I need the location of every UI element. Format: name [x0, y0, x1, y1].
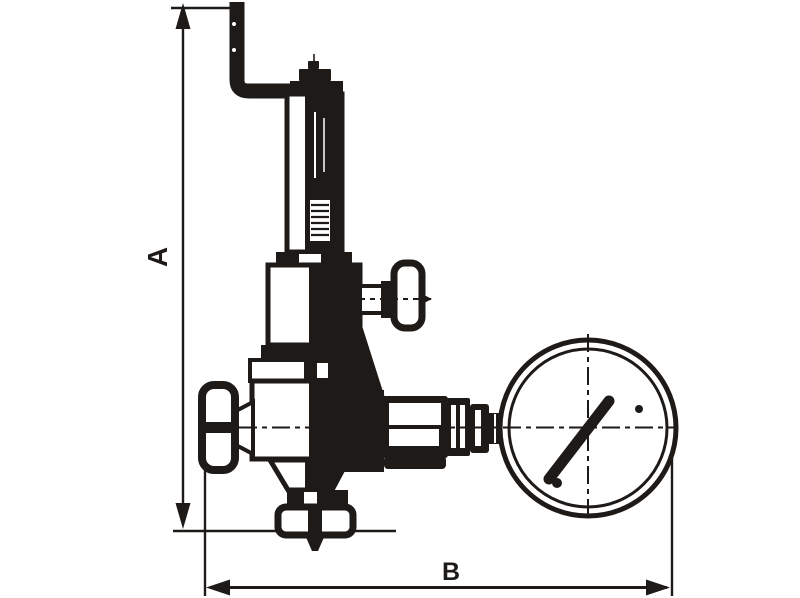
fitting-highlight — [389, 429, 439, 446]
dimension-b-label: B — [442, 558, 460, 586]
gauge-branch-root — [350, 390, 384, 458]
technical-drawing-canvas: A B — [0, 0, 800, 598]
valve-dimension-diagram: A B — [0, 0, 800, 598]
outlet-flange-hub — [308, 510, 322, 535]
lever-pin-hole — [232, 48, 236, 52]
dimension-a-label: A — [142, 247, 173, 267]
outlet-spigot — [305, 535, 325, 551]
arrow-left-icon — [206, 580, 230, 596]
fitting-under-band — [384, 456, 446, 469]
arrow-down-icon — [176, 503, 191, 529]
lever-pin-hole — [232, 22, 236, 26]
needle-tail-knob — [552, 478, 562, 488]
cap-pin — [308, 61, 319, 69]
fitting-highlight — [389, 403, 441, 425]
relief-lever — [237, 2, 296, 91]
centerline-mark-icon — [424, 295, 432, 303]
dial-set-point-dot — [635, 405, 643, 413]
bypass-handwheel — [394, 263, 422, 328]
housing-flange-notch — [299, 254, 321, 263]
body-flange-slot — [317, 363, 328, 378]
outlet-neck-slot — [304, 492, 317, 505]
valve-body-shading — [309, 381, 353, 459]
valve-assembly — [202, 2, 503, 551]
arrow-right-icon — [646, 580, 670, 596]
lower-right-web — [330, 458, 384, 472]
adjusting-cap — [299, 69, 331, 81]
